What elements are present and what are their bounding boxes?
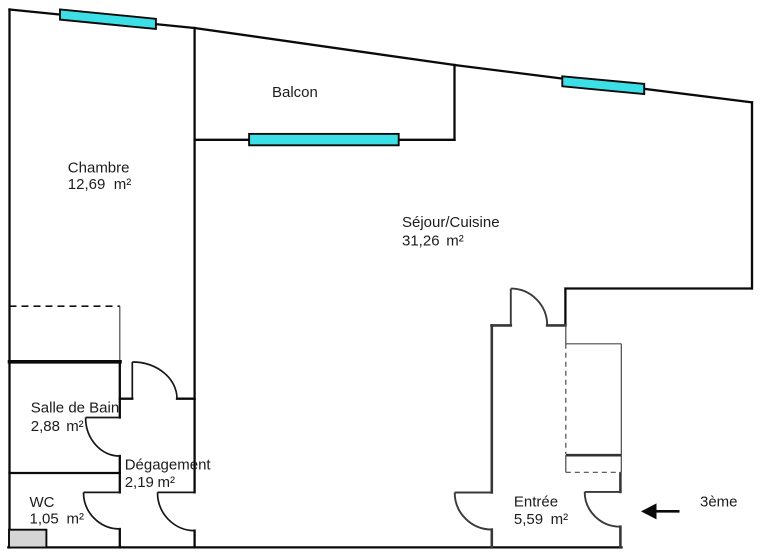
svg-text:2,19m²: 2,19m²	[125, 474, 175, 491]
svg-text:3ème: 3ème	[700, 494, 738, 511]
svg-text:5,59m²: 5,59m²	[514, 511, 568, 528]
svg-text:WC: WC	[30, 494, 55, 511]
svg-text:Entrée: Entrée	[514, 494, 558, 511]
svg-text:12,69m²: 12,69m²	[68, 176, 132, 193]
svg-text:Chambre: Chambre	[68, 160, 130, 177]
svg-text:Balcon: Balcon	[272, 84, 318, 101]
svg-text:Dégagement: Dégagement	[125, 457, 212, 474]
svg-text:Salle de Bain: Salle de Bain	[31, 400, 119, 417]
svg-text:2,88m²: 2,88m²	[31, 418, 84, 435]
svg-text:31,26m²: 31,26m²	[402, 232, 464, 249]
svg-text:1,05m²: 1,05m²	[30, 511, 85, 528]
svg-text:Séjour/Cuisine: Séjour/Cuisine	[402, 214, 500, 231]
